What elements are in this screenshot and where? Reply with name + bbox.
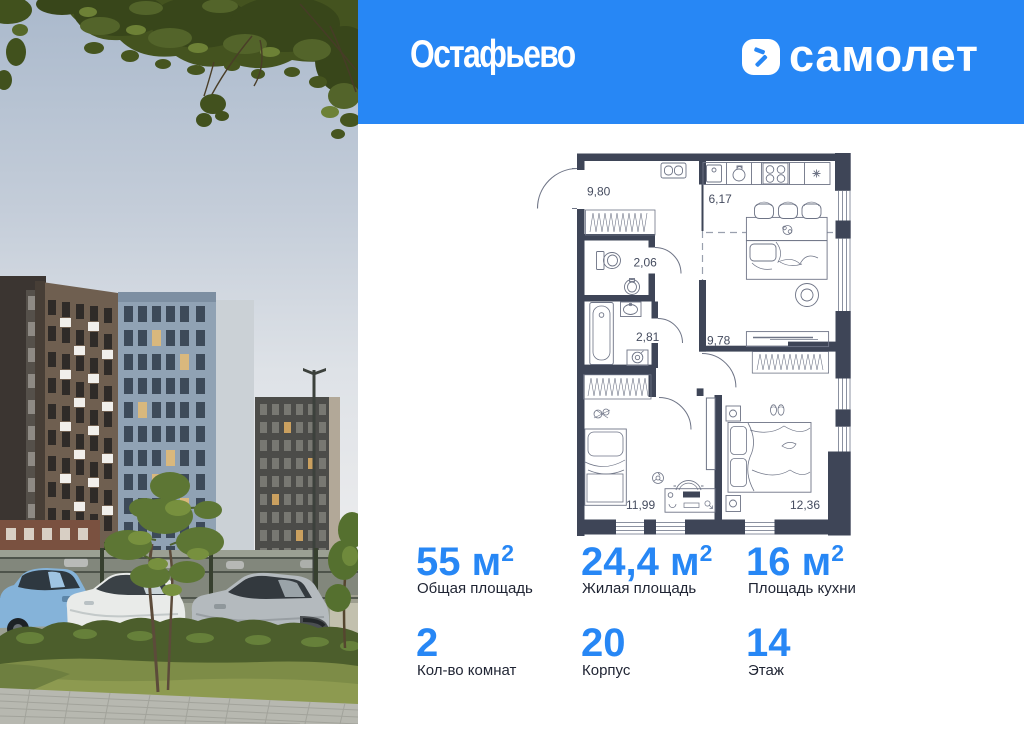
svg-text:2,81: 2,81 (636, 330, 660, 344)
svg-text:12,36: 12,36 (790, 498, 820, 512)
svg-text:9,78: 9,78 (707, 334, 731, 348)
svg-text:6,17: 6,17 (709, 192, 733, 206)
svg-text:11,99: 11,99 (626, 498, 655, 512)
svg-text:9,80: 9,80 (587, 185, 611, 199)
svg-text:2,06: 2,06 (634, 256, 658, 270)
